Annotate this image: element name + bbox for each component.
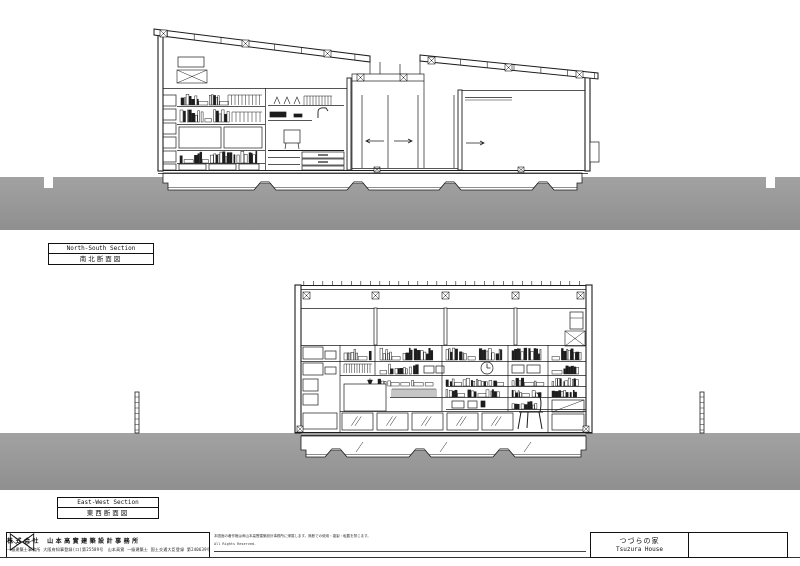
project-name-ja: つづらの家	[620, 537, 660, 546]
post	[374, 308, 377, 345]
label-north-south-ja: 南北断面図	[49, 254, 153, 264]
title-block-project: つづらの家 Tsuzura House	[590, 532, 788, 558]
company-name: 株式会社 山本高實建築設計事務所	[7, 537, 209, 547]
foundation-top	[163, 173, 582, 190]
vent-box-icon	[177, 70, 207, 83]
low-table	[344, 384, 386, 411]
post	[444, 308, 447, 345]
low-windows	[342, 413, 513, 430]
title-block-company: 株式会社 山本高實建築設計事務所 一級建築士事務所 大阪府知事登録(ロ)第255…	[6, 532, 210, 558]
label-north-south-en: North-South Section	[49, 244, 153, 254]
beam-brace-icon	[512, 292, 519, 299]
company-registration: 一級建築士事務所 大阪府知事登録(ロ)第25589号 山本高實 一級建築士 国土…	[7, 547, 209, 553]
wall-right	[585, 76, 590, 171]
drawing-sheet: North-South Section 南北断面図 East-West Sect…	[0, 0, 800, 566]
beam-brace-icon	[400, 74, 407, 81]
post	[514, 308, 517, 345]
site-pole-right	[700, 392, 704, 433]
vent-box-icon	[565, 331, 585, 346]
ground-marker-right	[766, 177, 775, 188]
wall-left	[158, 33, 163, 171]
ground-marker-left	[44, 177, 53, 188]
roof-brace-icon	[324, 50, 331, 57]
roof-brace-icon	[428, 57, 435, 64]
project-empty-cell	[689, 533, 787, 557]
vase-icon	[481, 401, 485, 407]
column	[347, 78, 351, 170]
wall-left	[295, 285, 301, 433]
roof-brace-icon	[160, 30, 167, 37]
north-south-section-drawing	[154, 28, 599, 190]
project-name-cell: つづらの家 Tsuzura House	[591, 533, 689, 557]
exterior-unit	[590, 142, 599, 162]
title-bar-rule	[214, 551, 586, 552]
section-drawings-canvas	[0, 0, 800, 566]
copyright-notice: 本図面の著作権は㈱山本高實建築設計事務所に帰属します。無断での使用・複製・転載を…	[214, 534, 389, 550]
copyright-notice-ja: 本図面の著作権は㈱山本高實建築設計事務所に帰属します。無断での使用・複製・転載を…	[214, 534, 389, 539]
beam-brace-icon	[303, 292, 310, 299]
floor-anchor-icon	[518, 167, 524, 172]
roof-brace-icon	[242, 40, 249, 47]
column	[458, 90, 462, 170]
floor-anchor-icon	[374, 167, 380, 172]
east-west-section-drawing	[295, 281, 592, 457]
beam-brace-icon	[372, 292, 379, 299]
beam-brace-icon	[357, 74, 364, 81]
site-pole-left	[135, 392, 139, 433]
roof-brace-icon	[576, 71, 583, 78]
label-east-west-ja: 東西断面図	[58, 508, 158, 518]
copyright-notice-en: All Rights Reserved.	[214, 542, 389, 547]
floor-anchor-icon	[297, 426, 303, 432]
floor-anchor-icon	[583, 426, 589, 432]
beam-brace-icon	[577, 292, 584, 299]
project-name-en: Tsuzura House	[616, 546, 663, 554]
bowtie-logo-icon	[9, 533, 35, 551]
roof-brace-icon	[505, 64, 512, 71]
label-north-south-section: North-South Section 南北断面図	[48, 243, 154, 265]
label-east-west-en: East-West Section	[58, 498, 158, 508]
beam-brace-icon	[442, 292, 449, 299]
label-east-west-section: East-West Section 東西断面図	[57, 497, 159, 519]
wall-right	[586, 285, 592, 433]
